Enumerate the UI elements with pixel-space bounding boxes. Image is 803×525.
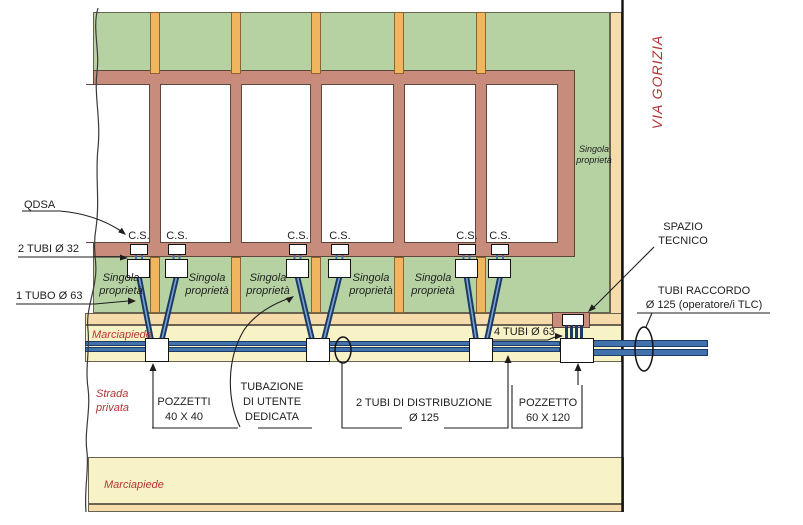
distribuzione-bracket — [342, 359, 508, 428]
annotation-layer — [0, 0, 803, 525]
qdsa-leader — [22, 211, 121, 231]
break-line — [86, 8, 99, 512]
raccordo-tube-marker-ellipse — [635, 327, 653, 371]
spazio-leader — [592, 247, 654, 309]
tubi4-leader — [493, 337, 555, 340]
pozzetti-bracket — [152, 367, 312, 428]
tubazione-leader — [230, 299, 287, 427]
pozzetto-bracket — [512, 367, 582, 428]
tubo63-leader — [16, 301, 128, 304]
site-plan-diagram: QDSA 2 TUBI Ø 32 1 TUBO Ø 63 C.S. C.S. C… — [0, 0, 803, 525]
distribution-tube-marker-ellipse — [335, 337, 351, 363]
raccordo-leader — [637, 313, 770, 327]
